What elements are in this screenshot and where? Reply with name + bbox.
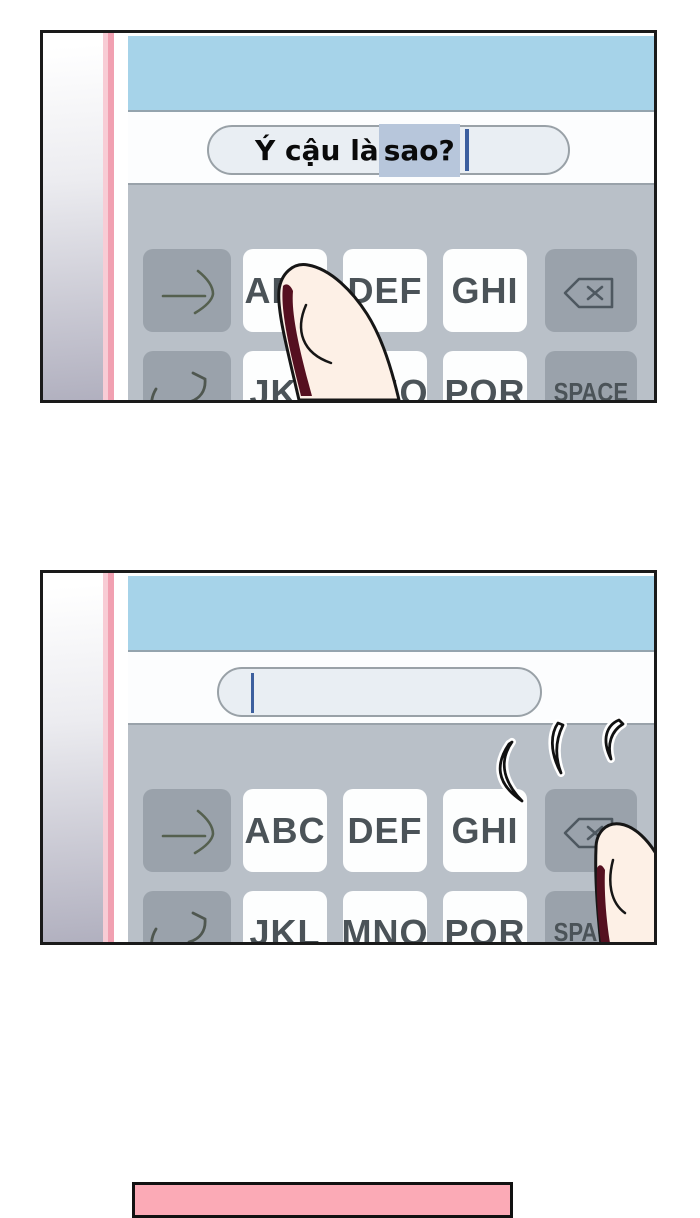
- key-jkl[interactable]: JKL: [243, 351, 327, 403]
- text-cursor: [465, 129, 469, 171]
- phone-case-pink-stripe: [103, 573, 114, 942]
- text-cursor: [251, 673, 254, 713]
- phone-bezel-strip: [114, 33, 128, 400]
- key-abc[interactable]: ABC: [243, 249, 327, 332]
- on-screen-keyboard: ABC DEF GHI: [128, 723, 654, 942]
- background-wall-gradient: [43, 573, 103, 942]
- backspace-icon: [545, 789, 637, 872]
- chat-header-bar: [128, 576, 654, 652]
- backspace-icon: [545, 249, 637, 332]
- key-mno[interactable]: MNO: [343, 891, 427, 945]
- key-mno[interactable]: MNO: [343, 351, 427, 403]
- selected-text: sao?: [379, 124, 460, 177]
- key-pqr[interactable]: PQR: [443, 351, 527, 403]
- text-input-field[interactable]: Ý cậu là sao?: [207, 125, 570, 175]
- key-space[interactable]: SPACE: [545, 351, 637, 403]
- key-ghi[interactable]: GHI: [443, 789, 527, 872]
- message-input-area: Ý cậu là sao?: [128, 112, 654, 183]
- on-screen-keyboard: ABC DEF GHI: [128, 183, 654, 400]
- key-undo[interactable]: [143, 351, 231, 403]
- key-def[interactable]: DEF: [343, 249, 427, 332]
- comic-panel-1: Ý cậu là sao? ABC DEF: [40, 30, 657, 403]
- key-backspace[interactable]: [545, 249, 637, 332]
- background-wall-gradient: [43, 33, 103, 400]
- key-ghi[interactable]: GHI: [443, 249, 527, 332]
- send-arrow-icon: [143, 789, 231, 872]
- text-input-field[interactable]: [217, 667, 542, 717]
- undo-icon: [143, 351, 231, 403]
- key-jkl[interactable]: JKL: [243, 891, 327, 945]
- speech-box-partial: [132, 1182, 513, 1218]
- chat-header-bar: [128, 36, 654, 112]
- key-backspace[interactable]: [545, 789, 637, 872]
- key-def[interactable]: DEF: [343, 789, 427, 872]
- undo-icon: [143, 891, 231, 945]
- phone-bezel-strip: [114, 573, 128, 942]
- phone-screen: ABC DEF GHI: [128, 573, 654, 942]
- key-send[interactable]: [143, 249, 231, 332]
- send-arrow-icon: [143, 249, 231, 332]
- key-pqr[interactable]: PQR: [443, 891, 527, 945]
- phone-screen: Ý cậu là sao? ABC DEF: [128, 33, 654, 400]
- key-space[interactable]: SPACE: [545, 891, 637, 945]
- comic-panel-2: ABC DEF GHI: [40, 570, 657, 945]
- key-undo[interactable]: [143, 891, 231, 945]
- key-send[interactable]: [143, 789, 231, 872]
- input-text: Ý cậu là: [255, 134, 379, 167]
- message-input-area: [128, 652, 654, 723]
- phone-case-pink-stripe: [103, 33, 114, 400]
- key-abc[interactable]: ABC: [243, 789, 327, 872]
